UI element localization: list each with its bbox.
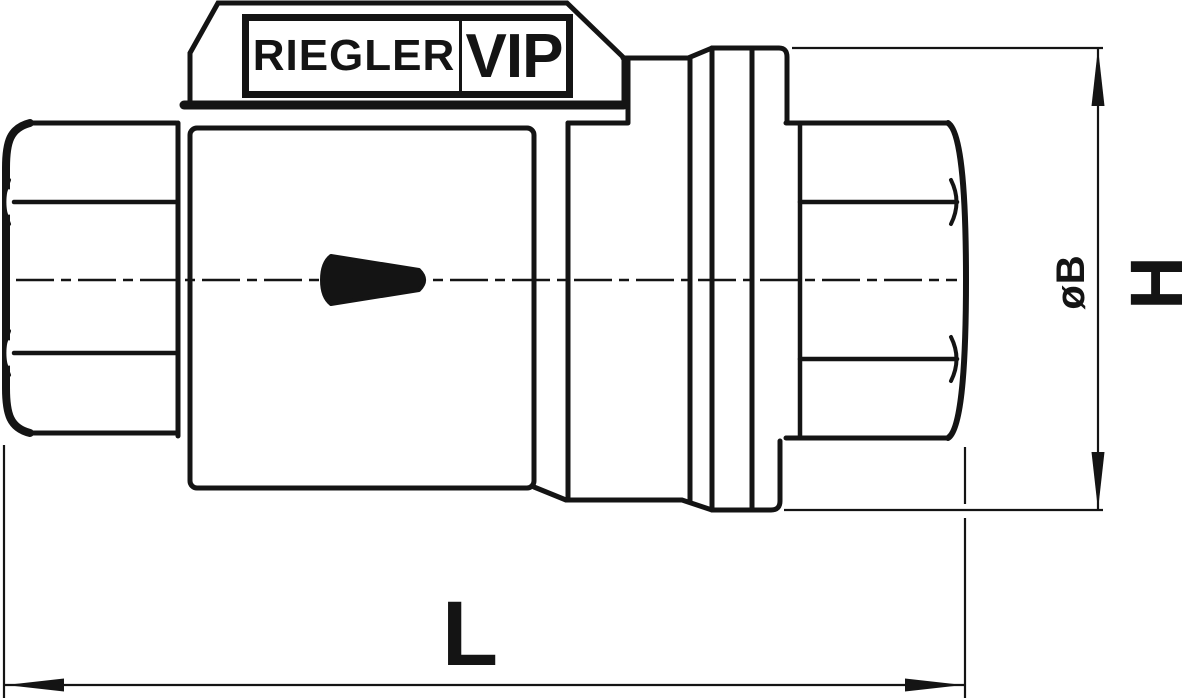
hex-chamfer-highlight xyxy=(6,340,11,366)
dimension-lines xyxy=(4,48,1103,698)
dimension-arrowheads xyxy=(6,48,1105,692)
arrowhead-down-icon xyxy=(1092,452,1105,510)
dimension-label-length: L xyxy=(430,592,510,676)
flow-direction-right-arrow-icon xyxy=(322,256,424,304)
series-text: VIP xyxy=(462,21,566,91)
arrowhead-up-icon xyxy=(1092,48,1105,106)
valve-technical-drawing: RIEGLER VIP L øB H xyxy=(0,0,1184,700)
brand-text: RIEGLER xyxy=(249,21,459,91)
valve-main-body xyxy=(190,128,534,488)
arrowhead-left-icon xyxy=(6,679,64,692)
valve-line-art xyxy=(0,0,1184,700)
dimension-label-height: H xyxy=(1106,233,1184,333)
brand-label-plate: RIEGLER VIP xyxy=(242,14,573,98)
hex-chamfer-highlight xyxy=(6,189,11,215)
arrowhead-right-icon xyxy=(905,679,963,692)
